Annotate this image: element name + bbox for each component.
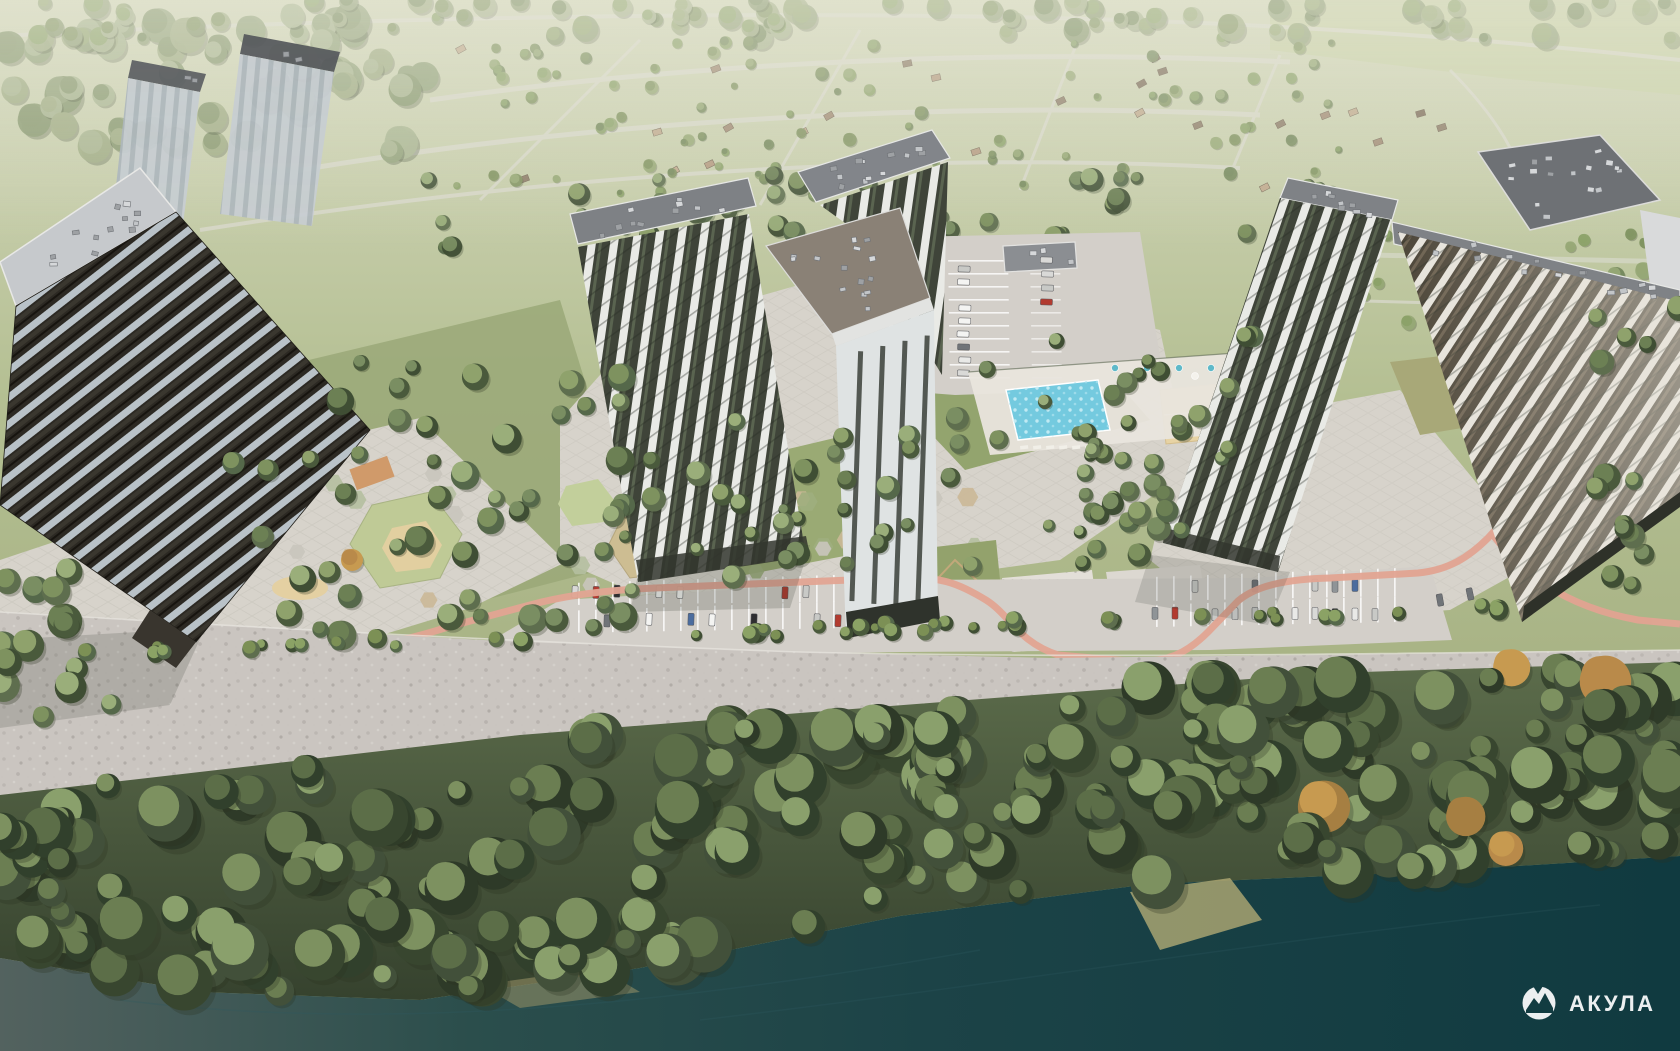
watermark: АКУЛА bbox=[1523, 987, 1656, 1020]
watermark-brand-text: АКУЛА bbox=[1569, 991, 1656, 1016]
retail-pavilion-roof bbox=[1003, 242, 1077, 272]
shark-mountain-icon bbox=[1523, 987, 1556, 1020]
parking-stalls bbox=[948, 250, 1010, 388]
render-viewport: АКУЛА bbox=[0, 0, 1680, 1051]
aerial-render-canvas: АКУЛА bbox=[0, 0, 1680, 1051]
